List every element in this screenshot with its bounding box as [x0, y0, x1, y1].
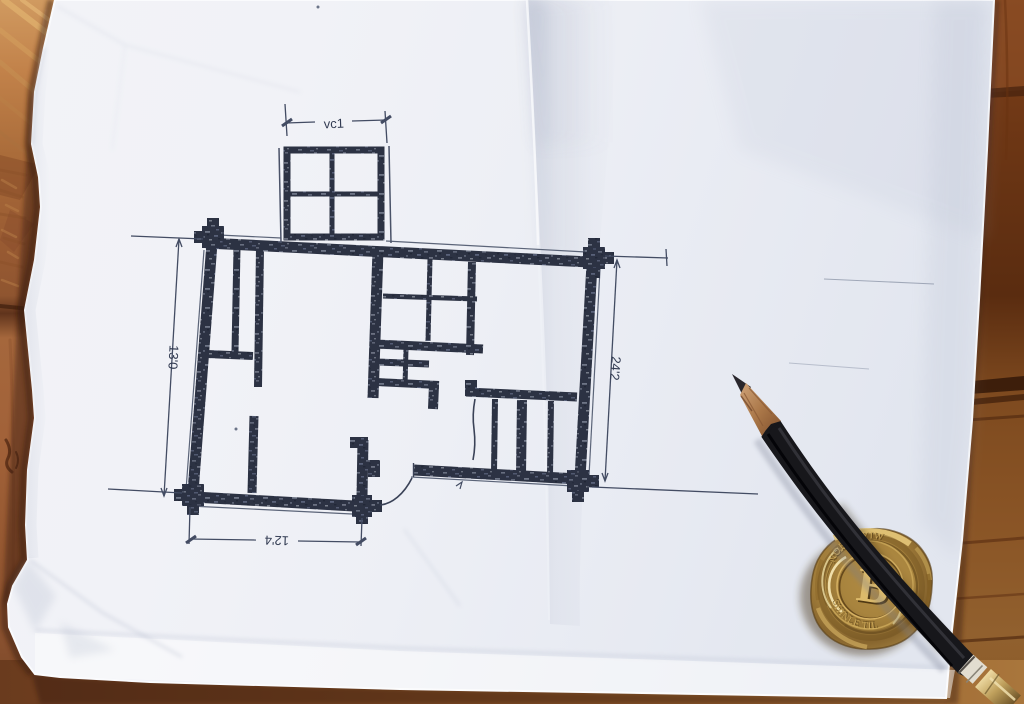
svg-text:12'4: 12'4 [265, 533, 290, 549]
svg-text:vc1: vc1 [323, 116, 344, 132]
svg-text:24'2: 24'2 [607, 356, 624, 381]
svg-text:13'0: 13'0 [165, 345, 181, 370]
